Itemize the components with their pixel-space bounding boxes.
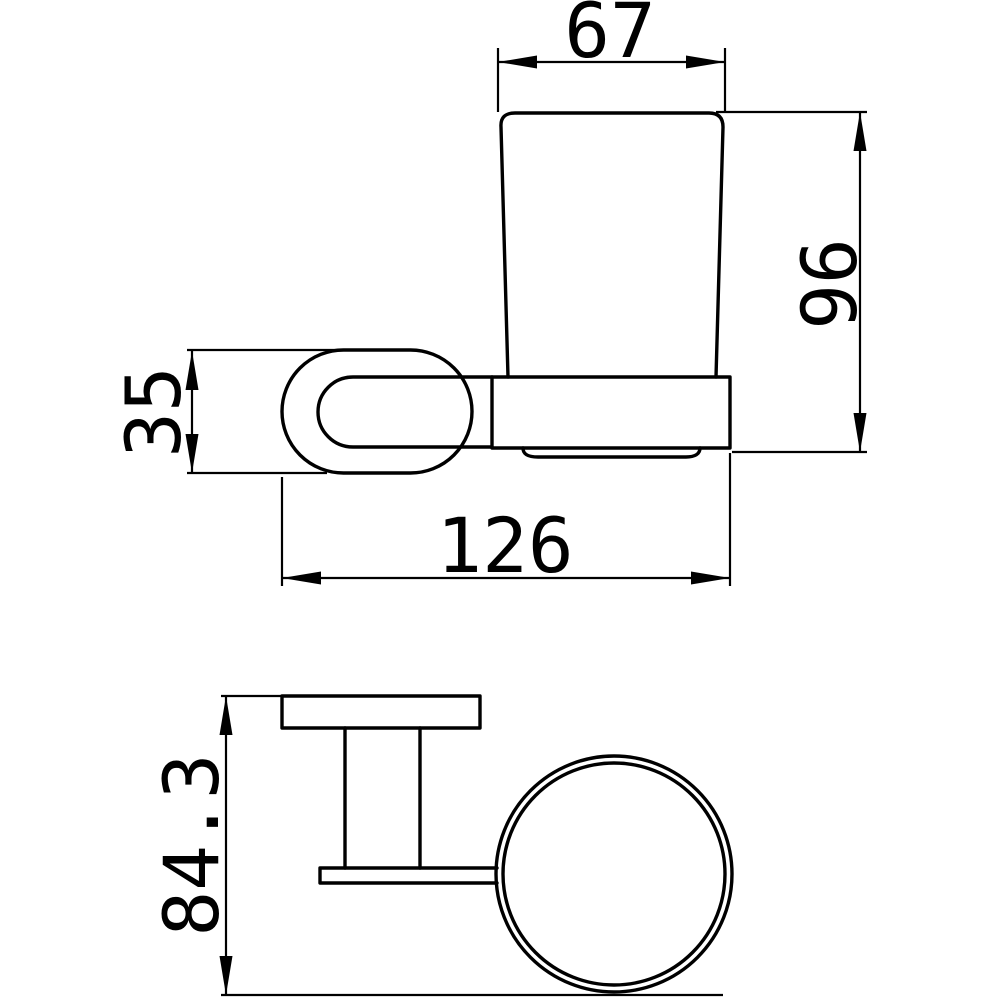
bracket-outer-profile: [282, 350, 472, 473]
arrowhead-top: [854, 112, 867, 151]
dimension-plan-depth: 84.3: [147, 696, 723, 995]
holder-ring-inner: [503, 763, 725, 985]
arrowhead-left: [282, 572, 321, 585]
arrowhead-right: [686, 56, 725, 69]
side-elevation-view: [282, 113, 730, 473]
arrowhead-top: [220, 696, 233, 735]
technical-drawing-page: 67 96 35 126 84.3: [0, 0, 1000, 1000]
dimension-value: 35: [109, 366, 198, 458]
arrowhead-left: [498, 56, 537, 69]
arrowhead-right: [691, 572, 730, 585]
holder-ring-outer: [496, 756, 732, 992]
dimension-value: 67: [564, 0, 656, 75]
dimension-bracket-height: 35: [109, 350, 342, 473]
top-plan-view: [282, 696, 732, 992]
arrowhead-bottom: [220, 956, 233, 995]
dimension-cup-top-width: 67: [498, 0, 725, 112]
holder-plate-side: [492, 377, 730, 448]
cup-outline: [501, 113, 723, 377]
wall-plate-top: [282, 696, 480, 728]
dimension-value: 96: [785, 238, 874, 330]
dimension-value: 126: [436, 501, 573, 590]
dimension-value: 84.3: [147, 753, 236, 936]
arrowhead-bottom: [854, 413, 867, 452]
holder-arm: [320, 868, 497, 883]
dimension-overall-height: 96: [716, 112, 874, 452]
tumbler-holder-drawing: 67 96 35 126 84.3: [0, 0, 1000, 1000]
